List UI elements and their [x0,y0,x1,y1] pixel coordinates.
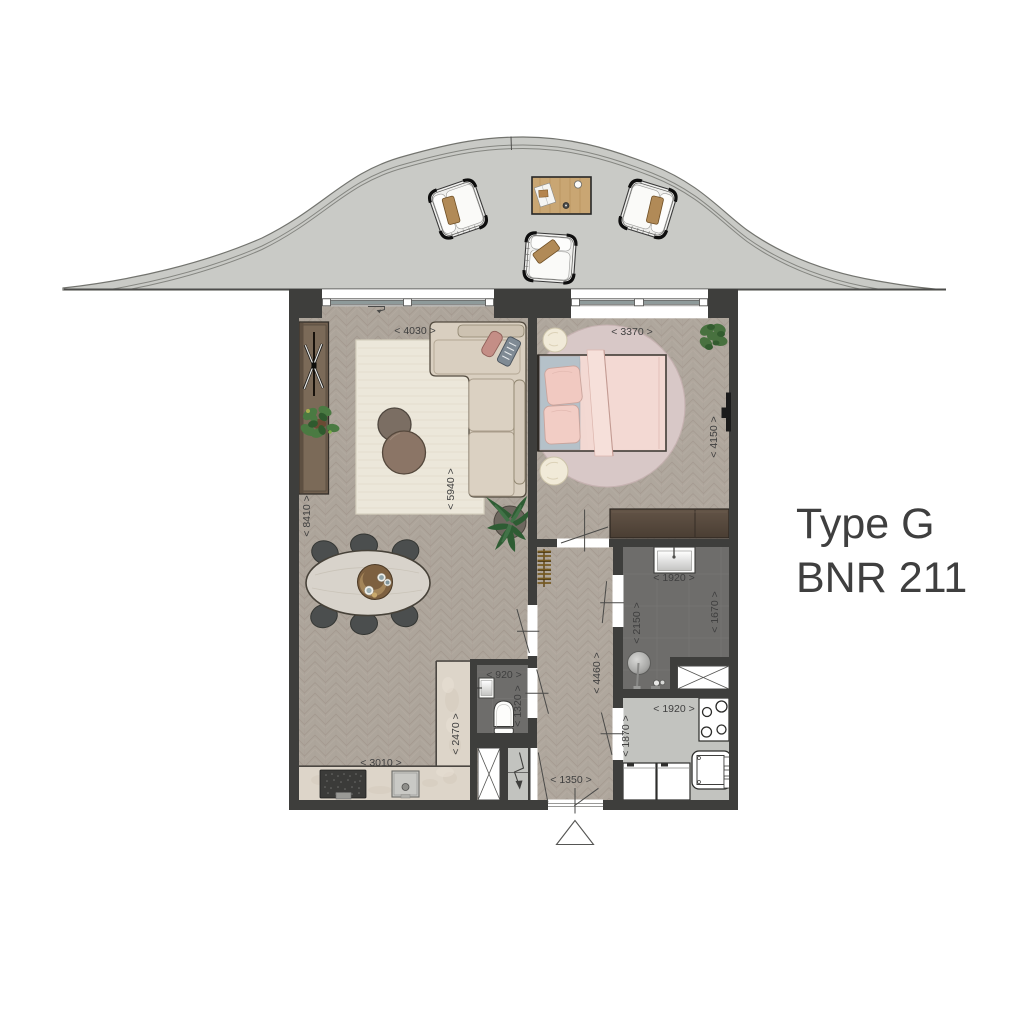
svg-text:BNR 211: BNR 211 [796,554,967,602]
svg-text:< 3370 >: < 3370 > [611,326,652,338]
svg-text:Type G: Type G [796,500,935,548]
svg-text:< 8410 >: < 8410 > [301,495,313,536]
svg-text:< 1670 >: < 1670 > [709,591,721,632]
svg-text:< 1350 >: < 1350 > [550,774,591,786]
svg-text:< 4150 >: < 4150 > [708,416,720,457]
svg-text:< 3010 >: < 3010 > [360,757,401,769]
svg-text:< 2150 >: < 2150 > [631,602,643,643]
svg-text:< 4030 >: < 4030 > [394,325,435,337]
svg-text:< 5940 >: < 5940 > [445,468,457,509]
svg-text:< 1920 >: < 1920 > [653,703,694,715]
svg-text:< 1320 >: < 1320 > [512,685,524,726]
svg-text:< 1920 >: < 1920 > [653,572,694,584]
svg-text:< 920 >: < 920 > [486,669,522,681]
svg-text:< 2470 >: < 2470 > [450,713,462,754]
svg-text:< 4460 >: < 4460 > [591,652,603,693]
svg-text:< 1870 >: < 1870 > [620,715,632,756]
